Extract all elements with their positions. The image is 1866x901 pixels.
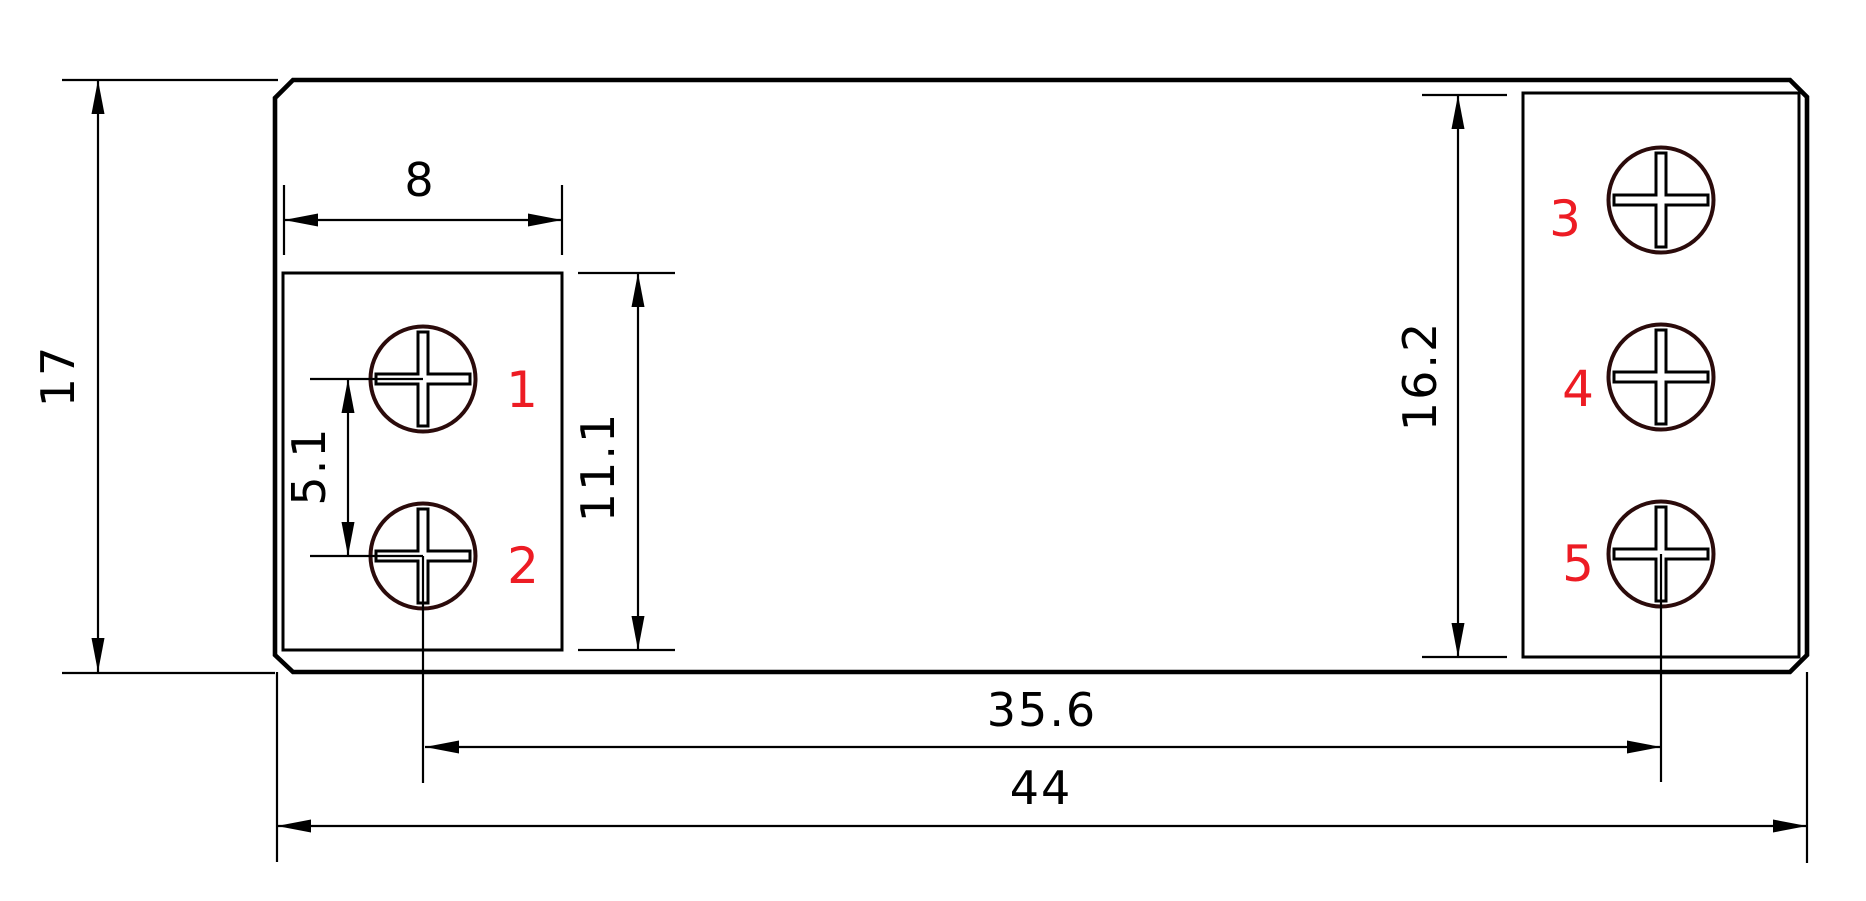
terminal-4-label: 4 [1562, 360, 1594, 418]
arrowhead-up-icon [1452, 95, 1465, 129]
dim-left-terminal-pitch-label: 5.1 [282, 426, 336, 505]
arrowhead-right-icon [528, 214, 562, 227]
arrowhead-down-icon [632, 616, 645, 650]
dim-left-block-width-label: 8 [404, 153, 435, 207]
dim-left-block-height-label: 11.1 [571, 412, 625, 522]
arrowhead-down-icon [92, 638, 105, 672]
dim-left-block-height: 11.1 [571, 273, 675, 650]
screw-terminal-4 [1609, 325, 1714, 430]
arrowhead-right-icon [1773, 820, 1807, 833]
phillips-cross-icon [1614, 153, 1708, 247]
dim-terminal-span-label: 35.6 [987, 683, 1097, 737]
arrowhead-right-icon [1627, 741, 1661, 754]
arrowhead-left-icon [425, 741, 459, 754]
dim-terminal-span: 35.6 [425, 683, 1661, 754]
terminal-2-label: 2 [507, 537, 539, 595]
dim-left-block-width: 8 [284, 153, 562, 255]
drawing-canvas: 17 8 5.1 11.1 16.2 35.6 [0, 0, 1866, 901]
terminal-5-label: 5 [1562, 535, 1594, 593]
arrowhead-up-icon [342, 379, 355, 413]
arrowhead-down-icon [1452, 623, 1465, 657]
terminal-1-label: 1 [506, 361, 538, 419]
screw-terminal-3 [1609, 148, 1714, 253]
arrowhead-left-icon [284, 214, 318, 227]
arrowhead-down-icon [342, 522, 355, 556]
dim-overall-height-label: 17 [31, 345, 85, 408]
arrowhead-left-icon [277, 820, 311, 833]
terminal-3-label: 3 [1549, 190, 1581, 248]
arrowhead-up-icon [632, 273, 645, 307]
dim-right-block-height: 16.2 [1393, 95, 1507, 657]
technical-drawing: 17 8 5.1 11.1 16.2 35.6 [0, 0, 1866, 901]
dim-left-terminal-pitch: 5.1 [282, 379, 355, 556]
dim-overall-width-label: 44 [1010, 761, 1073, 815]
dim-right-block-height-label: 16.2 [1393, 321, 1447, 431]
arrowhead-up-icon [92, 80, 105, 114]
phillips-cross-icon [1614, 330, 1708, 424]
dim-overall-height: 17 [31, 80, 278, 673]
